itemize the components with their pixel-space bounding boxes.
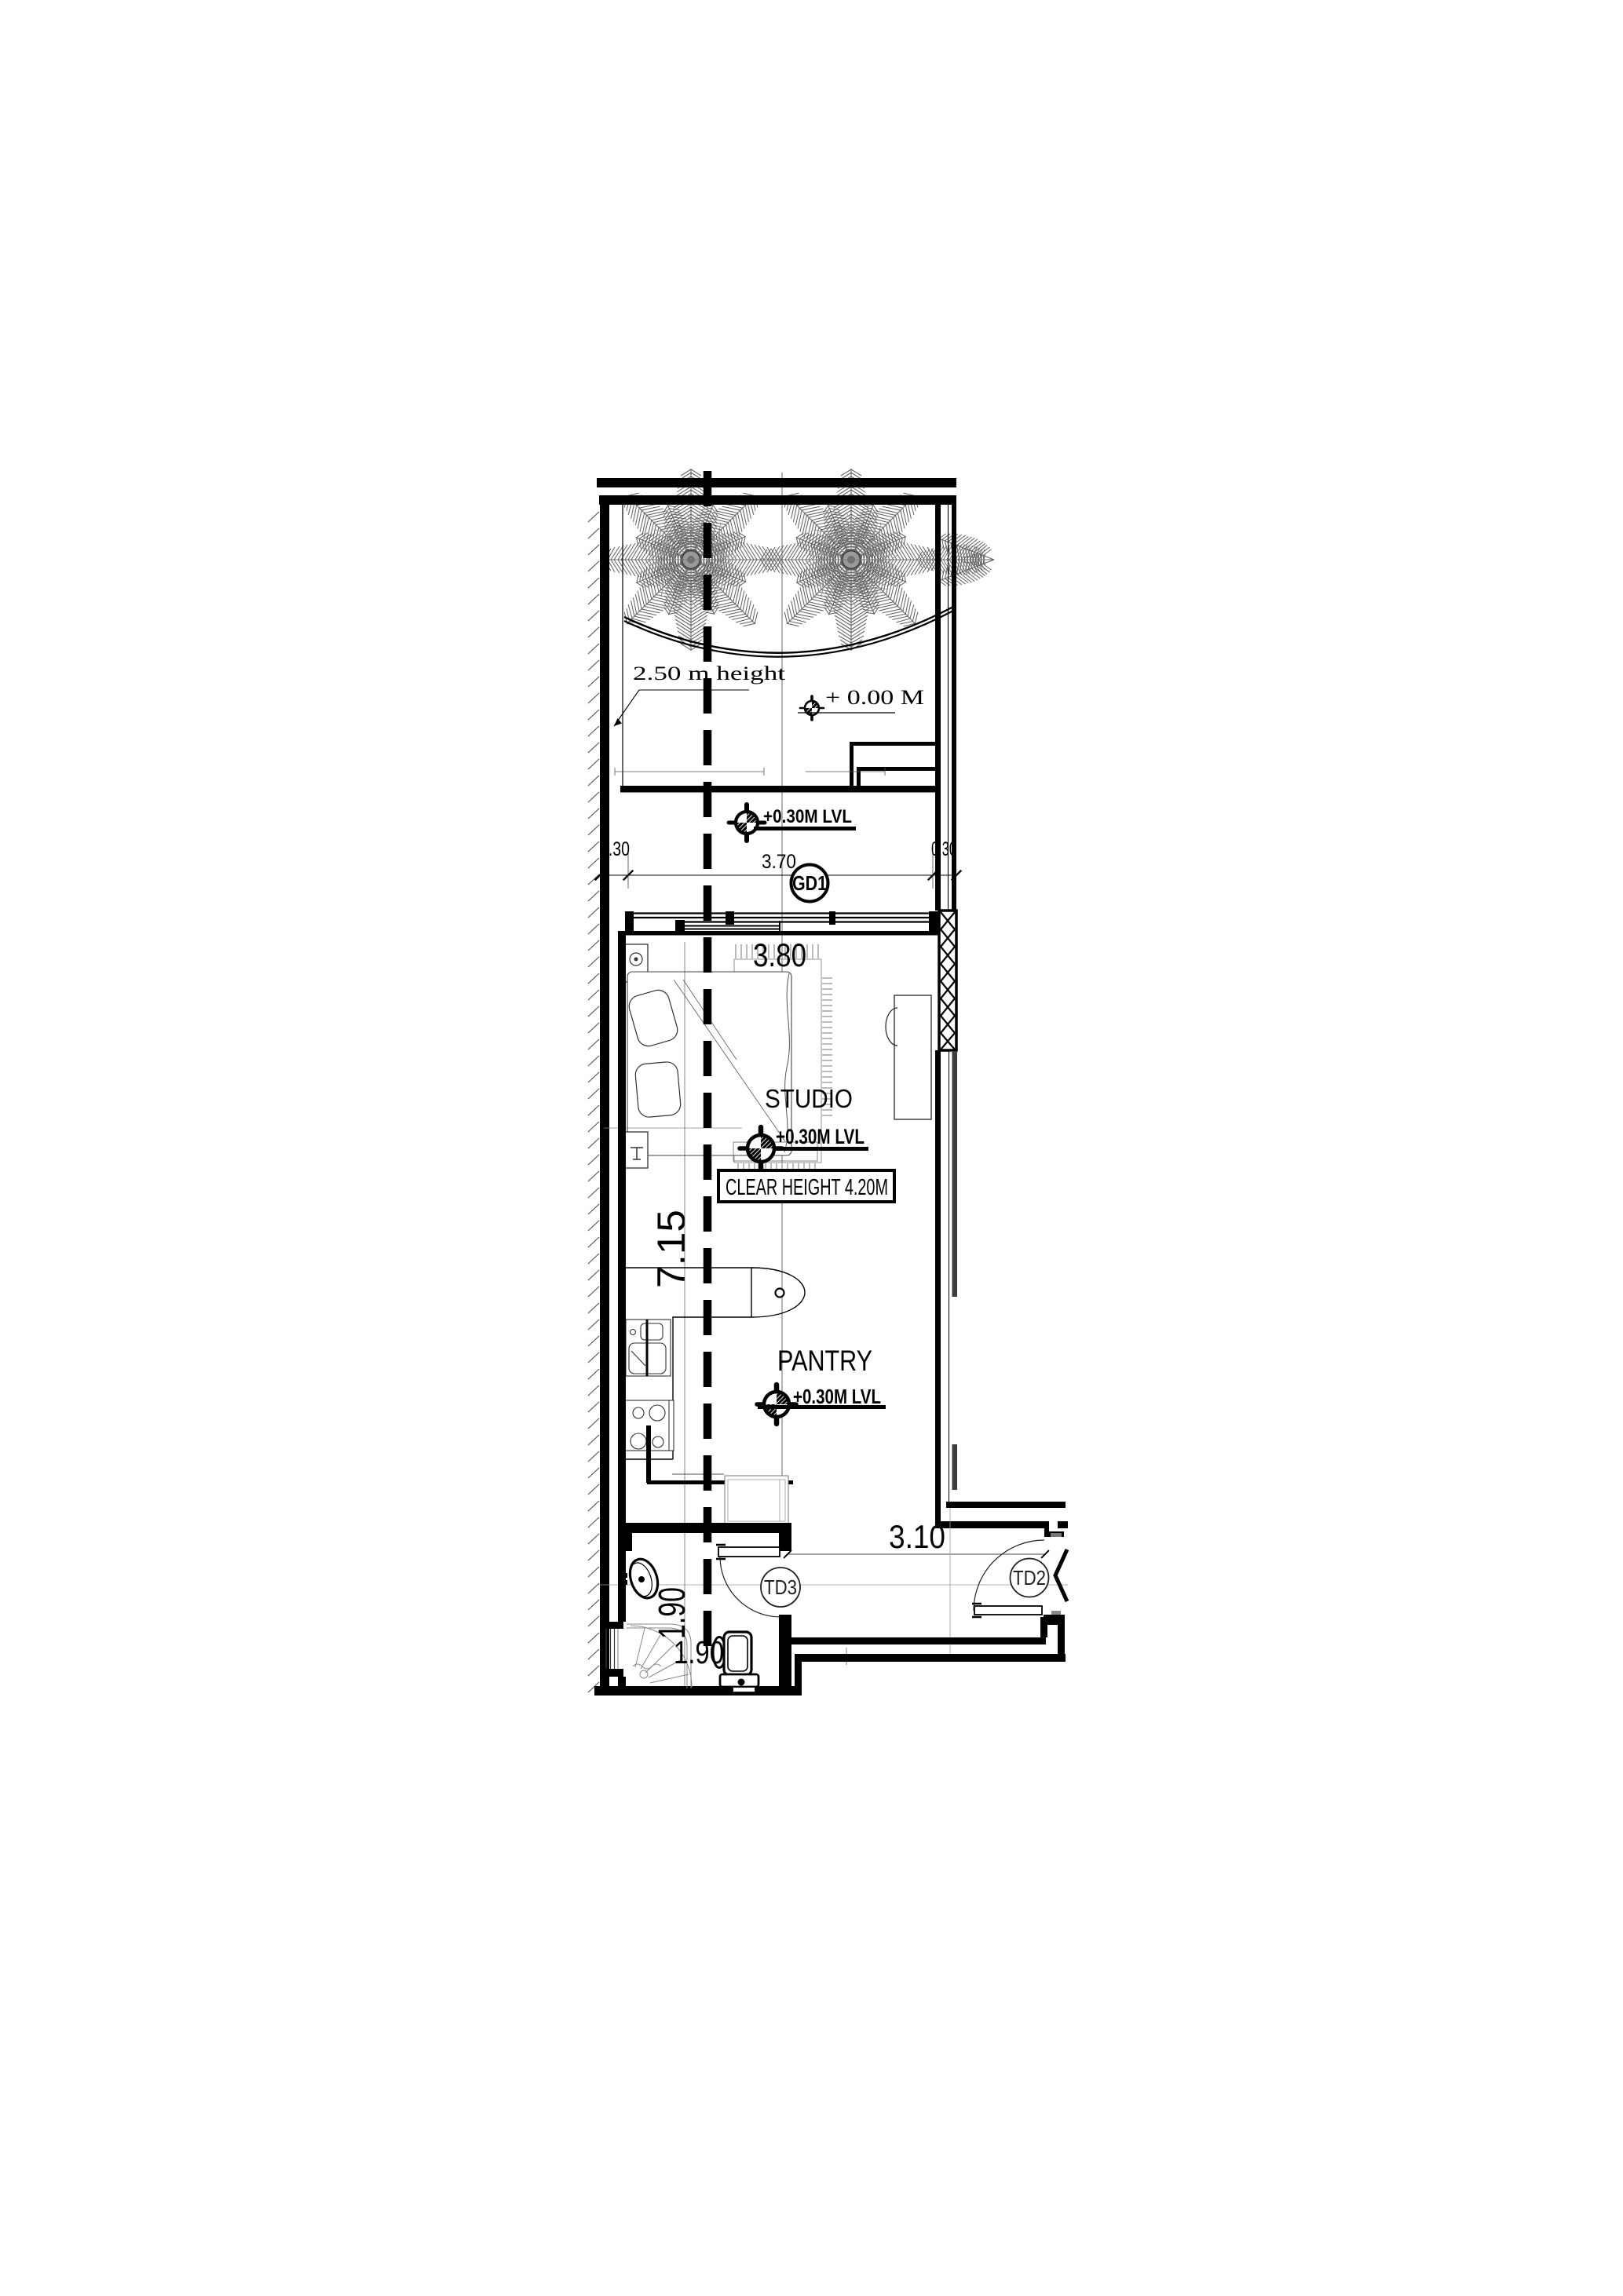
svg-text:+ 0.00 M: + 0.00 M xyxy=(825,686,924,709)
svg-text:1.90: 1.90 xyxy=(674,1634,724,1670)
svg-text:TD2: TD2 xyxy=(1013,1566,1046,1590)
svg-text:7.15: 7.15 xyxy=(649,1210,693,1288)
svg-text:3.70: 3.70 xyxy=(762,851,796,873)
svg-text:STUDIO: STUDIO xyxy=(765,1084,853,1113)
svg-text:CLEAR HEIGHT 4.20M: CLEAR HEIGHT 4.20M xyxy=(726,1175,888,1200)
svg-text:0.30: 0.30 xyxy=(600,838,630,860)
svg-text:+0.30M LVL: +0.30M LVL xyxy=(776,1125,865,1148)
svg-text:3.80: 3.80 xyxy=(753,936,806,973)
svg-text:TD3: TD3 xyxy=(764,1575,797,1599)
svg-text:3.10: 3.10 xyxy=(889,1518,945,1555)
svg-text:PANTRY: PANTRY xyxy=(777,1345,872,1377)
svg-text:+0.30M LVL: +0.30M LVL xyxy=(793,1385,881,1408)
svg-text:0.30: 0.30 xyxy=(931,838,956,860)
svg-text:1.90: 1.90 xyxy=(652,1587,693,1639)
svg-text:+0.30M LVL: +0.30M LVL xyxy=(763,806,852,827)
svg-text:GD1: GD1 xyxy=(792,871,827,895)
